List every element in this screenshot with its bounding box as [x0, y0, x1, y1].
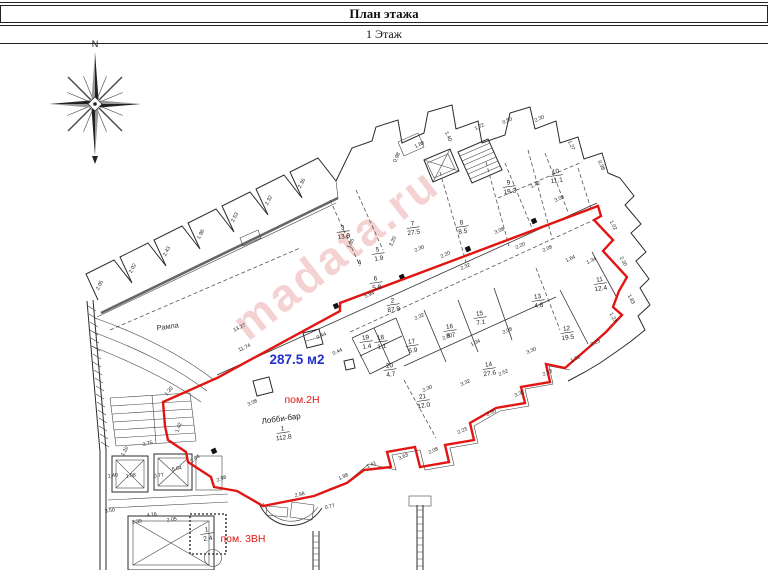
- dimension-label: 1.88: [414, 140, 426, 150]
- dimension-label: 2.53: [230, 212, 240, 224]
- dimension-label: 2.32: [264, 195, 274, 207]
- dimension-label: 2.05: [95, 280, 105, 292]
- svg-text:1.1: 1.1: [377, 343, 387, 351]
- room-label: 1219.5: [560, 325, 575, 343]
- dimension-label: 1.02: [608, 220, 618, 232]
- dimension-label: 0.98: [392, 152, 402, 164]
- dimension-label: 2.43: [162, 246, 172, 258]
- header-rule-mid: [0, 25, 768, 26]
- room-label: 1011.1: [549, 168, 564, 186]
- svg-text:11: 11: [596, 276, 604, 284]
- dimension-label: 3.75: [142, 440, 153, 448]
- dimension-label: 1.20: [164, 385, 175, 397]
- premise-area-callout: 287.5 м2: [269, 352, 324, 367]
- svg-text:6.9: 6.9: [408, 347, 418, 355]
- premise-3vn-label: пом. 3ВН: [220, 533, 265, 545]
- premise-2n-label: пом.2Н: [284, 394, 319, 406]
- svg-text:12.4: 12.4: [594, 285, 608, 294]
- floor-plan-drawing: madata.ru N: [0, 0, 768, 570]
- dimension-label: 0.77: [324, 503, 335, 511]
- dimension-label: 1.40: [107, 472, 118, 479]
- dimension-label: 2.20: [515, 241, 527, 251]
- svg-text:1: 1: [280, 425, 285, 432]
- dimension-label: 2.36: [297, 178, 307, 190]
- right-scalloped-edge: [568, 178, 650, 381]
- dimension-label: 2.05: [166, 516, 177, 523]
- svg-text:112.8: 112.8: [276, 433, 293, 442]
- dimension-label: 11.74: [238, 343, 252, 354]
- dimension-label: 2.32: [460, 262, 472, 272]
- dimension-label: 2.08: [502, 326, 514, 336]
- dimension-label: 0.44: [332, 347, 344, 357]
- dimension-label: 2.08: [542, 244, 554, 254]
- dimension-label: 1.42: [175, 422, 184, 434]
- left-wall-hatch: [88, 306, 109, 447]
- dimension-label: 1.64: [565, 254, 577, 264]
- svg-text:Лобби-бар: Лобби-бар: [261, 411, 302, 425]
- premise-2n-boundary: [163, 206, 627, 506]
- shaft-side-room: [196, 456, 222, 490]
- floor-plan-page: План этажа 1 Этаж madata.ru N: [0, 0, 768, 570]
- svg-text:2.4: 2.4: [203, 535, 213, 543]
- ramp-label: Рампа: [156, 320, 180, 332]
- dimension-label: 2.04: [190, 454, 202, 465]
- room-label: 12.4: [200, 526, 215, 544]
- svg-text:27.5: 27.5: [407, 229, 421, 238]
- dimension-label: 1.39: [131, 518, 142, 525]
- dimension-label: 0.77: [153, 472, 164, 479]
- svg-text:5.8: 5.8: [372, 284, 382, 292]
- svg-text:1.9: 1.9: [374, 255, 384, 263]
- floor-subtitle: 1 Этаж: [0, 27, 768, 41]
- svg-text:21: 21: [419, 393, 428, 401]
- room-label: 204.7: [383, 362, 398, 380]
- svg-text:9: 9: [506, 179, 511, 186]
- svg-text:4.8: 4.8: [534, 302, 544, 310]
- svg-text:27.6: 27.6: [483, 370, 497, 379]
- room-label: 176.9: [405, 338, 420, 356]
- page-title: План этажа: [0, 5, 768, 23]
- svg-text:19: 19: [362, 334, 371, 342]
- svg-text:8: 8: [459, 219, 464, 226]
- dimension-label: 1.40: [443, 131, 453, 143]
- dimension-label: 2.23: [590, 338, 602, 348]
- compass-center-dot: [93, 102, 97, 106]
- room-label: 88.5: [455, 219, 470, 237]
- dimension-label: 2.52: [498, 368, 510, 378]
- ramp: Рампа: [91, 318, 214, 402]
- svg-text:6: 6: [373, 275, 378, 282]
- room-label: 287.9: [386, 297, 401, 315]
- dimension-label: 4.16: [146, 511, 157, 518]
- dimension-label: 2.08: [428, 446, 440, 456]
- room-label: Лобби-бар1112.8: [261, 411, 304, 444]
- sheet-header: План этажа 1 Этаж: [0, 0, 768, 44]
- dimension-label: 2.23: [457, 426, 469, 436]
- room-label: 157.1: [473, 310, 488, 328]
- dimension-label: 1.83: [626, 294, 636, 306]
- header-rule-bottom: [0, 43, 768, 44]
- svg-text:2: 2: [390, 297, 395, 304]
- dimension-label: 2.20: [440, 250, 452, 260]
- room-label: 2112.0: [416, 393, 431, 411]
- svg-text:1.4: 1.4: [362, 343, 372, 351]
- dimension-label: 1.98: [196, 229, 206, 241]
- svg-text:18: 18: [377, 334, 386, 342]
- dimension-label: 1.98: [338, 472, 350, 482]
- svg-text:17: 17: [408, 338, 417, 346]
- svg-text:13: 13: [534, 293, 543, 301]
- dimension-label: 3.08: [247, 398, 259, 408]
- dimension-label: 2.32: [414, 312, 426, 322]
- svg-text:4.7: 4.7: [386, 371, 396, 379]
- svg-text:1: 1: [204, 526, 209, 533]
- elevator-shafts: [108, 454, 228, 570]
- dimension-label: 2.30: [422, 384, 434, 394]
- svg-text:14: 14: [485, 361, 494, 369]
- svg-text:12.0: 12.0: [417, 402, 431, 411]
- dimension-label: 3.08: [554, 194, 566, 204]
- room-label: 191.4: [359, 334, 374, 352]
- svg-text:11.1: 11.1: [550, 177, 563, 186]
- compass-rose: N: [49, 39, 141, 164]
- left-wall-lines: [87, 300, 106, 570]
- dimension-label: 3.32: [460, 378, 472, 388]
- dimension-label: 2.98: [216, 474, 228, 483]
- dimension-label: 1.34: [586, 256, 598, 266]
- svg-text:15: 15: [476, 310, 485, 318]
- dimension-label: 2.50: [486, 408, 498, 418]
- svg-text:20: 20: [386, 362, 395, 370]
- svg-text:12: 12: [563, 325, 572, 333]
- stairwell: [110, 393, 196, 446]
- dimension-label: 1.27: [566, 140, 576, 152]
- svg-text:87.9: 87.9: [387, 306, 401, 315]
- dimension-label: 2.02: [128, 263, 138, 275]
- svg-text:19.5: 19.5: [561, 334, 575, 343]
- room-label: 1427.6: [482, 361, 497, 379]
- svg-text:7.1: 7.1: [476, 319, 486, 327]
- dimension-label: 2.30: [534, 114, 546, 124]
- compass-south-arrow: [92, 156, 98, 164]
- header-rule-top: [0, 2, 768, 3]
- dimension-label: 3.50: [104, 507, 115, 514]
- dimension-label: 3.30: [526, 346, 538, 356]
- dimension-label: 2.30: [414, 244, 426, 254]
- dimension-label: 1.42: [530, 180, 542, 190]
- svg-text:8.5: 8.5: [458, 228, 468, 236]
- dimension-label: 2.30: [618, 256, 628, 268]
- room-label: 1112.4: [593, 276, 608, 294]
- left-retaining-wall: [87, 300, 109, 570]
- room-label: 65.8: [369, 275, 384, 293]
- column-circle: [205, 550, 222, 567]
- stair-treads: [110, 393, 196, 446]
- corridor-walls: [108, 494, 228, 508]
- room-label: 919.3: [502, 179, 517, 197]
- svg-text:19.3: 19.3: [503, 188, 517, 197]
- stair-core-top: [458, 139, 502, 183]
- svg-text:16: 16: [446, 323, 455, 331]
- hatched-wall-a: [313, 531, 319, 570]
- svg-text:10: 10: [552, 168, 561, 176]
- hatched-wall-b: [409, 496, 431, 570]
- ramp-curves: [91, 318, 214, 402]
- dimension-label: 6.04: [171, 465, 182, 472]
